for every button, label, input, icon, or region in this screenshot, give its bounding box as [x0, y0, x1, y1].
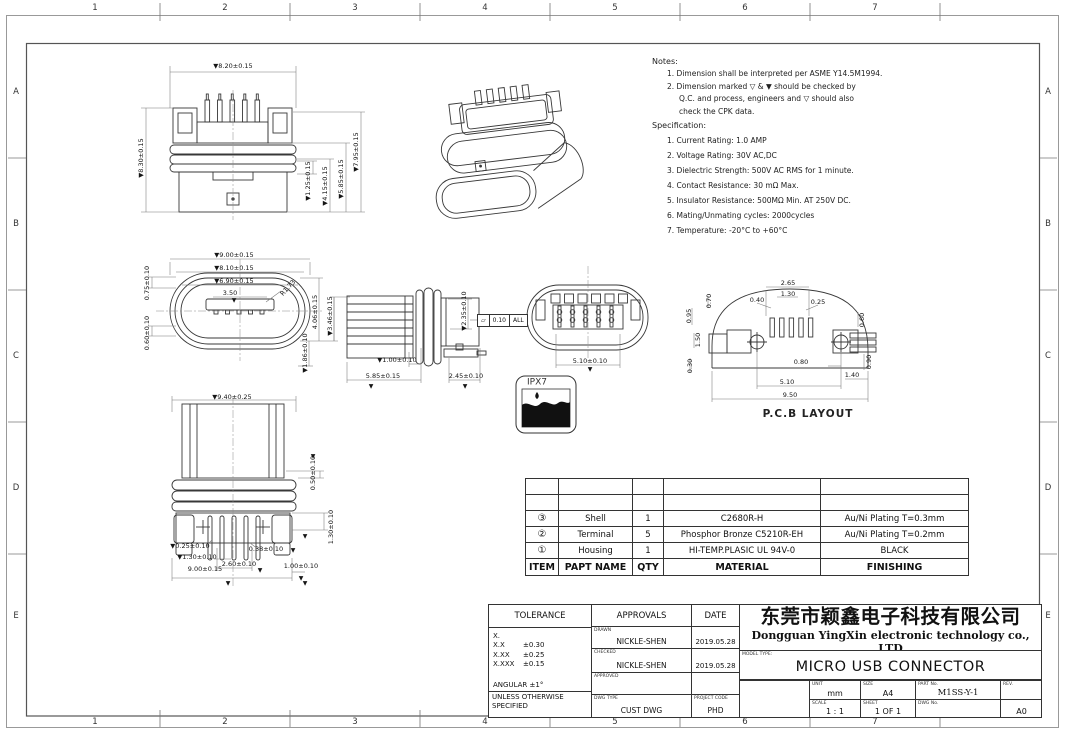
company-name-cn: 东莞市颖鑫电子科技有限公司: [740, 605, 1041, 629]
pcb-layout-view: [709, 289, 876, 368]
dim-marker: ▼: [232, 298, 237, 304]
bom-header-qty: QTY: [633, 559, 664, 575]
bom-empty-cell: [633, 495, 664, 511]
tolerance-x-label: X.: [493, 632, 523, 640]
tolerance-footer-line2: SPECIFIED: [492, 702, 588, 711]
notes-block: Notes: 1. Dimension shall be interpreted…: [652, 55, 982, 235]
dim-label: ▼8.20±0.15: [213, 63, 252, 70]
dim-label: 0.60±0.10: [144, 316, 151, 350]
tolerance-xx-label: X.X: [493, 641, 523, 649]
size-value: A4: [861, 689, 915, 698]
zone-row-label: E: [13, 611, 18, 621]
bom-finishing: Au/Ni Plating T=0.3mm: [821, 511, 968, 527]
approvals-section: APPROVALS DRAWNNICKLE-SHEN CHECKEDNICKLE…: [591, 605, 691, 717]
dim-label: ▼1.86±0.10: [302, 333, 309, 372]
bom-finishing: BLACK: [821, 543, 968, 559]
title-block: TOLERANCE X. X.X±0.30 X.XX±0.25 X.XXX±0.…: [488, 604, 1042, 718]
dim-label: ▼0.25±0.10: [170, 543, 209, 550]
zone-col-label: 1: [92, 3, 97, 13]
checked-date: 2019.05.28: [692, 662, 739, 670]
drawing-sheet: 1 2 3 4 5 6 7 1 2 3 4 5 6 7 A B C D E A …: [0, 0, 1065, 738]
dwg-type-label: DWG TYPE: [594, 696, 618, 701]
dim-label: ▼8.30±0.15: [138, 138, 145, 177]
dim-label: ▼6.90±0.15: [214, 278, 253, 285]
zone-col-label: 5: [612, 3, 617, 13]
flatness-symbol: ▱: [478, 315, 490, 326]
ipx7-label: IPX7: [527, 379, 547, 388]
zone-row-label: A: [1045, 87, 1051, 97]
dim-label: 1.30: [781, 291, 795, 298]
spec-line: 6. Mating/Unmating cycles: 2000cycles: [667, 211, 982, 220]
projection-symbol-cell: [740, 680, 809, 717]
dim-label: 1.40: [845, 372, 859, 379]
rev-label: REV.: [1003, 682, 1013, 687]
dim-marker: ▼: [588, 367, 593, 373]
bom-empty-cell: [526, 479, 559, 495]
spec-line: 3. Dielectric Strength: 500V AC RMS for …: [667, 166, 982, 175]
bom-empty-cell: [559, 495, 633, 511]
zone-row-label: C: [13, 351, 19, 361]
unit-value: mm: [810, 689, 860, 698]
drawn-date: 2019.05.28: [692, 638, 739, 646]
rear-view: [527, 285, 648, 350]
tolerance-angular: ANGULAR ±1°: [493, 681, 587, 689]
spec-line: 7. Temperature: -20°C to +60°C: [667, 226, 982, 235]
dim-label: ▼2.35±0.10: [461, 291, 468, 330]
bom-header-finishing: FINISHING: [821, 559, 968, 575]
model-type-label: MODEL TYPE:: [742, 652, 772, 657]
date-section: DATE 2019.05.28 2019.05.28 PROJECT CODEP…: [691, 605, 739, 717]
spec-line: 5. Insulator Resistance: 500MΩ Min. AT 2…: [667, 196, 982, 205]
bom-header-material: MATERIAL: [664, 559, 821, 575]
zone-row-label: D: [1045, 483, 1052, 493]
zone-row-label: A: [13, 87, 19, 97]
bom-part-name: Shell: [559, 511, 633, 527]
title-right-section: 东莞市颖鑫电子科技有限公司 Dongguan YingXin electroni…: [739, 605, 1041, 717]
dim-label: 0.30: [687, 359, 694, 373]
model-type-block: MODEL TYPE: MICRO USB CONNECTOR: [740, 651, 1041, 680]
flatness-callout: ▱ 0.10 ALL: [477, 314, 528, 327]
dim-label: 0.40: [750, 297, 764, 304]
oval-view-dims: [148, 259, 338, 366]
dwg-no-label: DWG No.: [918, 701, 938, 706]
tolerance-section: TOLERANCE X. X.X±0.30 X.XX±0.25 X.XXX±0.…: [489, 605, 591, 717]
dim-label: 9.00±0.15: [188, 566, 222, 573]
note-line: 2. Dimension marked ▽ & ▼ should be chec…: [667, 82, 982, 91]
flatness-scope: ALL: [510, 315, 527, 326]
bom-empty-cell: [559, 479, 633, 495]
spec-line: 1. Current Rating: 1.0 AMP: [667, 136, 982, 145]
dim-label: 1.00±0.10: [284, 563, 318, 570]
isometric-view: [424, 79, 588, 220]
bom-header-item: ITEM: [526, 559, 559, 575]
bom-qty: 5: [633, 527, 664, 543]
dim-label: ▼5.85±0.15: [338, 159, 345, 198]
bom-empty-cell: [664, 479, 821, 495]
tolerance-xxxx-label: X.XXX: [493, 660, 523, 668]
zone-col-label: 6: [742, 717, 747, 727]
spec-line: 4. Contact Resistance: 30 mΩ Max.: [667, 181, 982, 190]
note-line: Q.C. and process, engineers and ▽ should…: [679, 94, 982, 103]
zone-row-label: E: [1045, 611, 1050, 621]
bom-qty: 1: [633, 543, 664, 559]
bom-part-name: Terminal: [559, 527, 633, 543]
dim-label: ▼4.15±0.15: [322, 166, 329, 205]
bom-finishing: Au/Ni Plating T=0.2mm: [821, 527, 968, 543]
dim-marker: ▼: [303, 534, 308, 540]
zone-col-label: 4: [482, 717, 487, 727]
bottom-view: [172, 404, 296, 560]
bom-material: C2680R-H: [664, 511, 821, 527]
tolerance-header: TOLERANCE: [489, 605, 591, 628]
dim-label: ▼9.00±0.15: [214, 252, 253, 259]
bom-header-part-name: PAPT NAME: [559, 559, 633, 575]
zone-row-label: C: [1045, 351, 1051, 361]
part-no-label: PART No.: [918, 682, 938, 687]
project-code-label: PROJECT CODE: [694, 696, 728, 701]
dim-label: 0.95: [686, 309, 693, 323]
bom-part-name: Housing: [559, 543, 633, 559]
dim-marker: ▼: [311, 454, 316, 460]
front-view-dims: [141, 66, 365, 212]
scale-label: SCALE: [812, 701, 826, 706]
dim-label: ▼9.40±0.25: [212, 394, 251, 401]
zone-col-label: 7: [872, 717, 877, 727]
zone-row-label: B: [1045, 219, 1051, 229]
dim-label: ▼1.30±0.10: [177, 554, 216, 561]
zone-col-label: 6: [742, 3, 747, 13]
checked-name: NICKLE-SHEN: [592, 661, 691, 670]
company-block: 东莞市颖鑫电子科技有限公司 Dongguan YingXin electroni…: [740, 605, 1041, 651]
dim-label: 9.50: [783, 392, 797, 399]
zone-row-label: D: [13, 483, 20, 493]
zone-col-label: 5: [612, 717, 617, 727]
checked-label: CHECKED: [594, 650, 616, 655]
bom-table: ③ Shell 1 C2680R-H Au/Ni Plating T=0.3mm…: [525, 478, 969, 576]
zone-col-label: 7: [872, 3, 877, 13]
zone-col-label: 3: [352, 3, 357, 13]
bom-empty-cell: [633, 479, 664, 495]
tolerance-footer-line1: UNLESS OTHERWISE: [492, 693, 588, 702]
approvals-header: APPROVALS: [592, 605, 691, 627]
dim-label: 1.30±0.10: [328, 510, 335, 544]
dim-label: 3.50: [223, 290, 237, 297]
dim-label: 2.60±0.10: [222, 561, 256, 568]
date-header: DATE: [692, 605, 739, 627]
dwg-type-value: CUST DWG: [592, 706, 691, 715]
dim-label: 0.75±0.10: [144, 266, 151, 300]
dim-label: 0.38±0.10: [249, 546, 283, 553]
dim-label: 1.50: [695, 333, 702, 347]
dim-label: 0.80: [794, 359, 808, 366]
spec-line: 2. Voltage Rating: 30V AC,DC: [667, 151, 982, 160]
tolerance-xxx-value: ±0.25: [523, 651, 544, 659]
tolerance-xx-value: ±0.30: [523, 641, 544, 649]
dim-marker: ▼: [258, 568, 263, 574]
bom-empty-cell: [821, 479, 968, 495]
dim-label: 0.90: [866, 355, 873, 369]
unit-label: UNIT: [812, 682, 823, 687]
bom-qty: 1: [633, 511, 664, 527]
dim-label: 0.60: [859, 313, 866, 327]
title-fields-grid: UNITmm SIZEA4 PART No.M1SS-Y-1 REV. SCAL…: [740, 680, 1041, 717]
tolerance-xxxx-value: ±0.15: [523, 660, 544, 668]
dim-marker: ▼: [369, 384, 374, 390]
flatness-value: 0.10: [490, 315, 510, 326]
dim-label: 2.65: [781, 280, 795, 287]
bom-empty-cell: [664, 495, 821, 511]
dim-label: 0.25: [811, 299, 825, 306]
tolerance-xxx-label: X.XX: [493, 651, 523, 659]
bom-material: Phosphor Bronze C5210R-EH: [664, 527, 821, 543]
drawn-label: DRAWN: [594, 628, 611, 633]
dim-label: ▼1.25±0.15: [305, 161, 312, 200]
bom-empty-cell: [526, 495, 559, 511]
sheet-label: SHEET: [863, 701, 878, 706]
dim-label: 5.10±0.10: [573, 358, 607, 365]
bom-empty-cell: [821, 495, 968, 511]
project-code-value: PHD: [692, 706, 739, 715]
dim-label: 0.70: [706, 294, 713, 308]
dim-marker: ▼: [226, 581, 231, 587]
approved-label: APPROVED: [594, 674, 618, 679]
bom-material: HI-TEMP.PLASIC UL 94V-0: [664, 543, 821, 559]
zone-col-label: 2: [222, 3, 227, 13]
bom-item-number: ②: [526, 527, 559, 543]
part-no-value: M1SS-Y-1: [916, 688, 1000, 698]
note-line: check the CPK data.: [679, 107, 982, 116]
bom-item-number: ①: [526, 543, 559, 559]
bom-item-number: ③: [526, 511, 559, 527]
dim-label: ▼1.00±0.10: [377, 357, 416, 364]
dim-label: 0.50±0.10: [310, 456, 317, 490]
dim-label: 5.85±0.15: [366, 373, 400, 380]
zone-col-label: 2: [222, 717, 227, 727]
zone-col-label: 1: [92, 717, 97, 727]
dim-marker: ▼: [463, 384, 468, 390]
notes-title: Notes:: [652, 57, 982, 66]
zone-col-label: 4: [482, 3, 487, 13]
drawn-name: NICKLE-SHEN: [592, 637, 691, 646]
dim-label: 5.10: [780, 379, 794, 386]
scale-value: 1 : 1: [810, 707, 860, 716]
zone-row-label: B: [13, 219, 19, 229]
company-name-en: Dongguan YingXin electronic technology c…: [740, 629, 1041, 651]
dim-label: 4.06±0.15: [312, 295, 319, 329]
dim-marker: ▼: [291, 548, 296, 554]
dim-label: ▼7.95±0.15: [353, 132, 360, 171]
dim-marker: ▼: [303, 581, 308, 587]
size-label: SIZE: [863, 682, 873, 687]
dim-label: ▼3.46±0.15: [327, 296, 334, 335]
dim-label: 2.45±0.10: [449, 373, 483, 380]
dim-label: ▼8.10±0.15: [214, 265, 253, 272]
model-type-value: MICRO USB CONNECTOR: [740, 659, 1041, 675]
rev-value: A0: [1001, 707, 1042, 716]
spec-title: Specification:: [652, 121, 982, 130]
pcb-layout-label: P.C.B LAYOUT: [763, 409, 854, 420]
sheet-value: 1 OF 1: [861, 707, 915, 716]
zone-col-label: 3: [352, 717, 357, 727]
note-line: 1. Dimension shall be interpreted per AS…: [667, 69, 982, 78]
